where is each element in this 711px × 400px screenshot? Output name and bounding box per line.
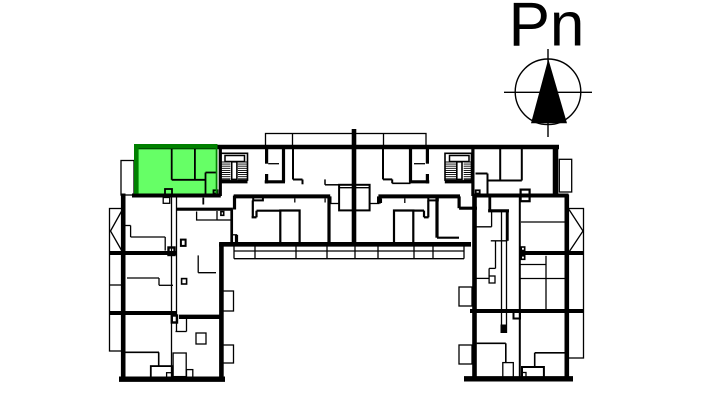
svg-text:Pn: Pn [509,0,585,60]
